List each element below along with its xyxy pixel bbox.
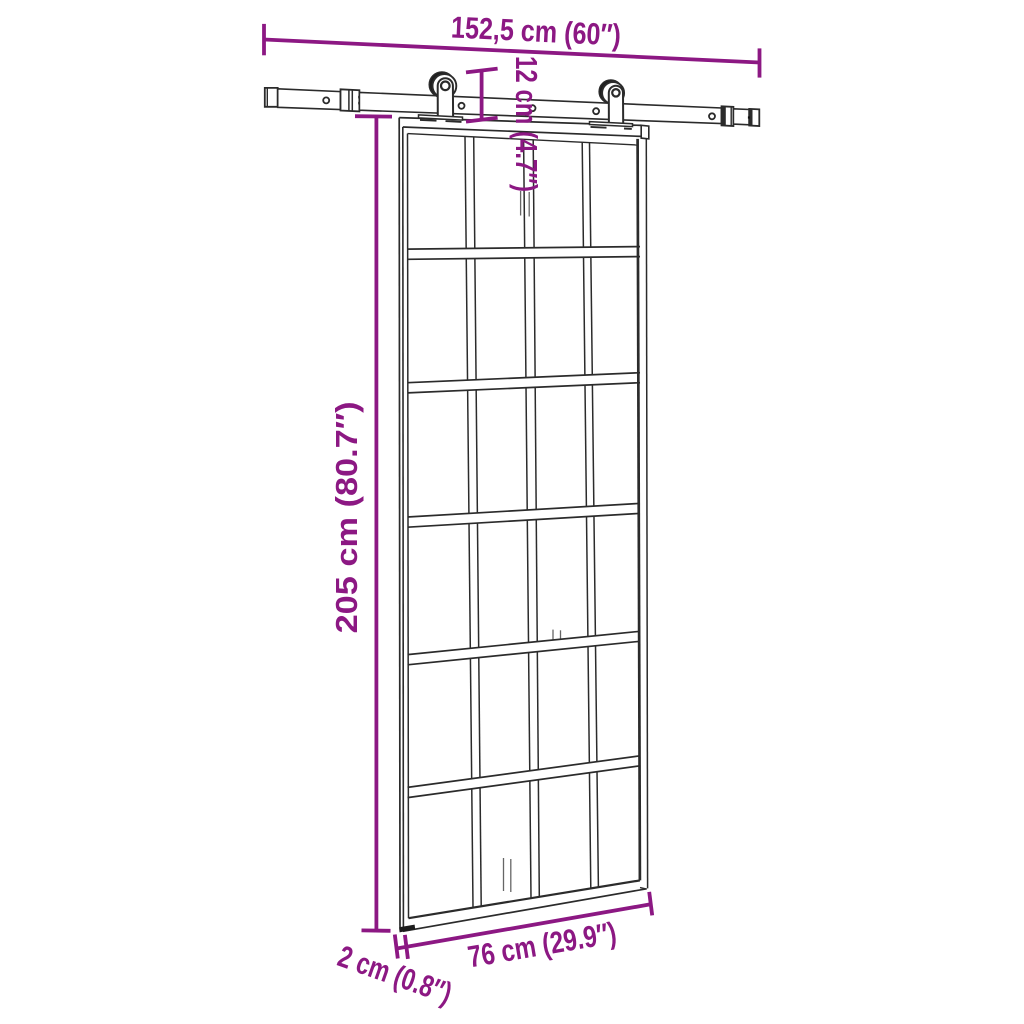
- svg-text:205 cm (80.7″): 205 cm (80.7″): [330, 401, 364, 633]
- svg-text:12 cm (4.7″): 12 cm (4.7″): [509, 56, 543, 192]
